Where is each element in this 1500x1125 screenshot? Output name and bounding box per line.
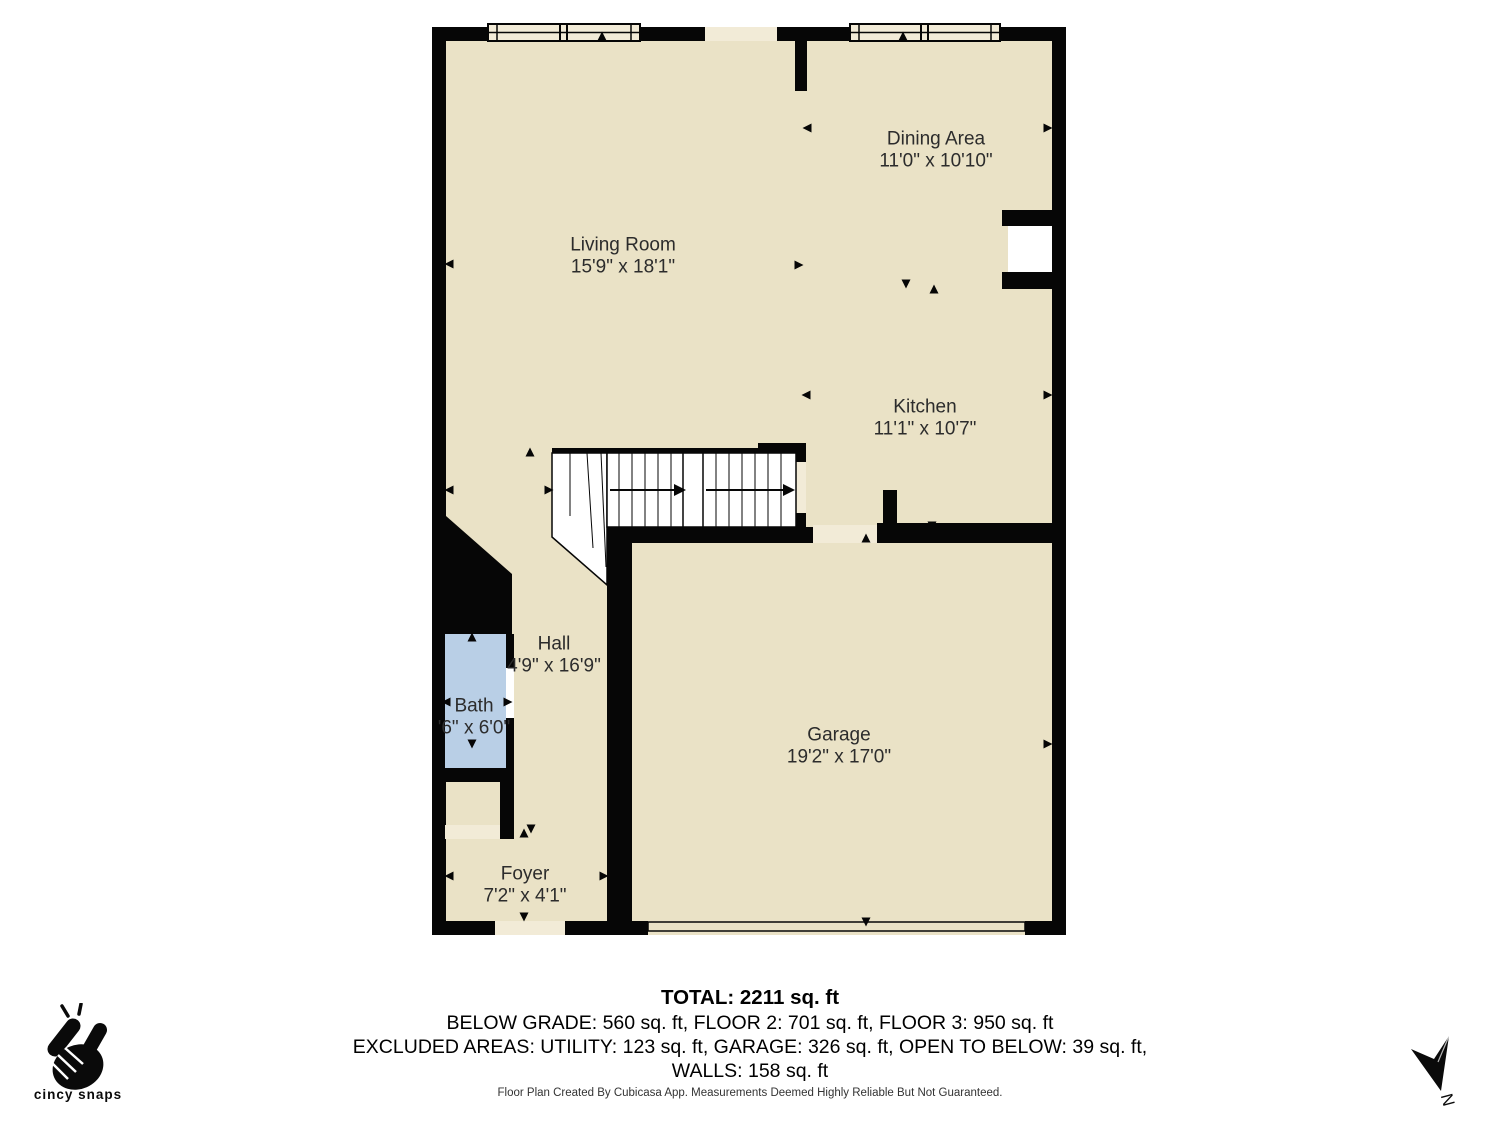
room-name: Living Room — [570, 235, 676, 257]
snap-hand-icon — [45, 1004, 110, 1098]
room-label-dining-area: Dining Area11'0" x 10'10" — [879, 129, 992, 174]
room-dimensions: 19'2" x 17'0" — [787, 747, 891, 769]
room-dimensions: 11'0" x 10'10" — [879, 151, 992, 173]
disclaimer-text: Floor Plan Created By Cubicasa App. Meas… — [0, 1087, 1500, 1099]
north-compass: N — [1385, 1020, 1495, 1120]
walls-area-text: WALLS: 158 sq. ft — [0, 1061, 1500, 1083]
floorplan-drawing — [0, 0, 1500, 1125]
room-label-living-room: Living Room15'9" x 18'1" — [570, 235, 676, 280]
room-label-hall: Hall4'9" x 16'9" — [507, 634, 601, 679]
excluded-area-text: EXCLUDED AREAS: UTILITY: 123 sq. ft, GAR… — [0, 1037, 1500, 1059]
cincy-snaps-logo: cincy snaps — [28, 1003, 138, 1108]
window-left — [488, 24, 640, 41]
room-dimensions: 11'1" x 10'7" — [874, 419, 977, 441]
closet-door — [1008, 226, 1052, 272]
room-name: Garage — [787, 725, 891, 747]
room-name: Bath — [438, 696, 511, 718]
logo-text: cincy snaps — [34, 1087, 122, 1102]
room-dimensions: 7'2" x 4'1" — [483, 886, 566, 908]
room-label-garage: Garage19'2" x 17'0" — [787, 725, 891, 770]
room-dimensions: 15'9" x 18'1" — [570, 257, 676, 279]
total-area-text: TOTAL: 2211 sq. ft — [0, 987, 1500, 1010]
floors-area-text: BELOW GRADE: 560 sq. ft, FLOOR 2: 701 sq… — [0, 1013, 1500, 1035]
wall-opening-top — [705, 27, 777, 41]
room-label-foyer: Foyer7'2" x 4'1" — [483, 864, 566, 909]
room-label-kitchen: Kitchen11'1" x 10'7" — [874, 397, 977, 442]
garage-door — [648, 922, 1025, 931]
room-label-bath: Bath'6" x 6'0" — [438, 696, 511, 741]
area-summary: TOTAL: 2211 sq. ft BELOW GRADE: 560 sq. … — [0, 985, 1500, 1084]
room-dimensions: 4'9" x 16'9" — [507, 656, 601, 678]
window-right — [850, 24, 1000, 41]
room-name: Hall — [507, 634, 601, 656]
north-arrow-icon — [1411, 1036, 1449, 1091]
room-name: Foyer — [483, 864, 566, 886]
floorplan-page: Living Room15'9" x 18'1"Dining Area11'0"… — [0, 0, 1500, 1125]
room-dimensions: '6" x 6'0" — [438, 718, 511, 740]
compass-label: N — [1437, 1091, 1459, 1108]
room-name: Kitchen — [874, 397, 977, 419]
room-name: Dining Area — [879, 129, 992, 151]
